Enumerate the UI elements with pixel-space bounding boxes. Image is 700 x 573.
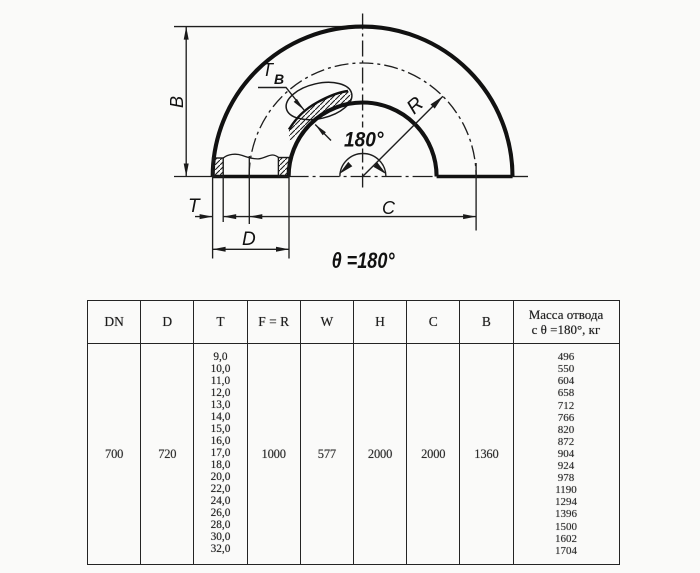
svg-text:180°: 180° bbox=[344, 129, 384, 152]
svg-text:B: B bbox=[274, 71, 284, 87]
svg-text:θ =180°: θ =180° bbox=[332, 248, 395, 273]
svg-text:D: D bbox=[242, 229, 256, 250]
svg-text:T: T bbox=[188, 196, 201, 217]
svg-text:B: B bbox=[167, 96, 187, 108]
svg-text:C: C bbox=[382, 198, 396, 218]
